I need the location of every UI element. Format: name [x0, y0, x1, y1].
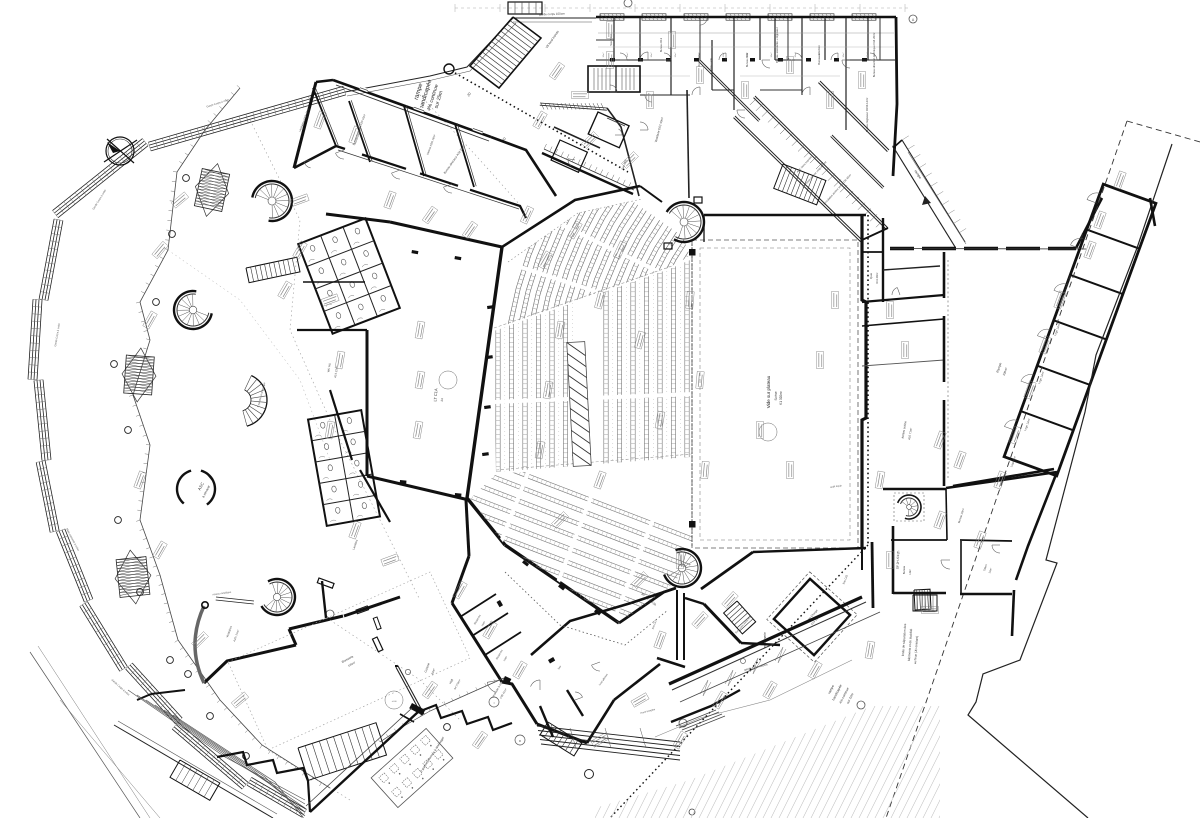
svg-text:entrée salle: entrée salle	[709, 58, 713, 72]
svg-text:Bureau D13: Bureau D13	[659, 37, 663, 52]
svg-text:+0.00: +0.00	[391, 701, 397, 703]
svg-text:SF 2H /CF2h: SF 2H /CF2h	[896, 550, 901, 569]
svg-text:Bureau régisseur D15b 12m²: Bureau régisseur D15b 12m²	[865, 98, 869, 133]
svg-text:16m²: 16m²	[602, 52, 605, 57]
svg-text:Bureau direction technique D14: Bureau direction technique D14 20m²	[872, 33, 876, 78]
svg-text:16m²: 16m²	[866, 52, 869, 57]
svg-text:Sas 23m²: Sas 23m²	[609, 34, 613, 46]
svg-text:Scène: Scène	[774, 391, 778, 400]
svg-text:16m²: 16m²	[770, 52, 773, 57]
svg-text:LT C1A: LT C1A	[433, 388, 439, 402]
svg-text:Bureau assistante + régisseur: Bureau assistante + régisseur	[775, 27, 779, 63]
svg-text:K1 320m²: K1 320m²	[779, 391, 783, 405]
svg-text:K11 29m²: K11 29m²	[875, 272, 879, 283]
svg-text:16m²: 16m²	[674, 52, 677, 57]
svg-text:16m²: 16m²	[842, 52, 845, 57]
svg-text:13m²: 13m²	[909, 569, 912, 575]
svg-text:Bureau direction: Bureau direction	[817, 45, 821, 65]
svg-text:Quai: Quai	[869, 273, 873, 279]
svg-text:16m²: 16m²	[650, 52, 653, 57]
svg-text:Bureau: Bureau	[902, 565, 906, 574]
svg-text:Bureau B09: Bureau B09	[745, 52, 749, 67]
svg-text:Vide sur plateau: Vide sur plateau	[766, 375, 771, 408]
svg-text:Occupation: Occupation	[697, 53, 701, 67]
svg-text:24: 24	[440, 398, 444, 402]
